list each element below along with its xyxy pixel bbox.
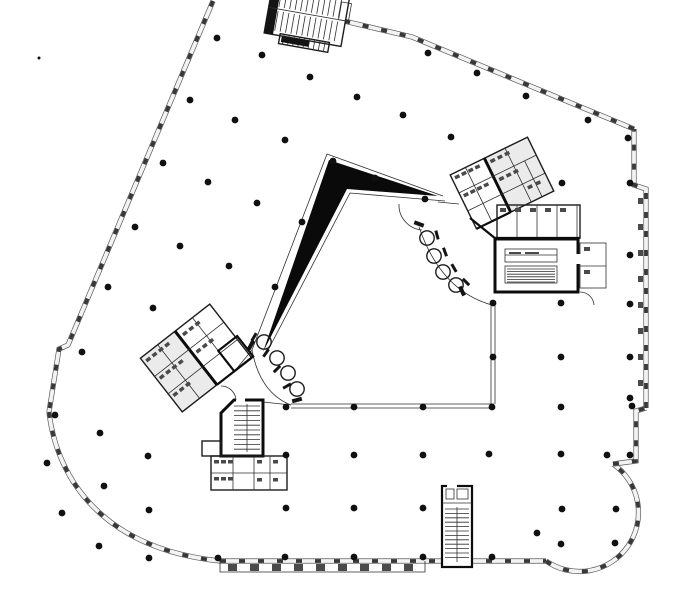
column-dot bbox=[38, 57, 41, 60]
mech-label-box bbox=[505, 249, 557, 262]
corridor-door-arc bbox=[399, 204, 422, 230]
column-dot bbox=[96, 543, 103, 550]
atrium-wedge-wall bbox=[263, 160, 438, 352]
floor-plan-drawing bbox=[0, 0, 686, 594]
column-dot bbox=[232, 117, 239, 124]
column-dot bbox=[625, 135, 632, 142]
mech-room-east bbox=[495, 239, 578, 292]
column-dot bbox=[474, 70, 481, 77]
column-dot bbox=[420, 505, 427, 512]
fixture bbox=[257, 460, 278, 464]
column-dot bbox=[101, 483, 108, 490]
door-arc bbox=[580, 292, 594, 305]
column-dot bbox=[283, 404, 290, 411]
fixture bbox=[214, 460, 233, 464]
column-dot bbox=[627, 180, 634, 187]
column-dot bbox=[448, 134, 455, 141]
column-dot bbox=[52, 412, 59, 419]
exterior-wall-top-right bbox=[344, 21, 634, 129]
fixture bbox=[257, 478, 278, 482]
column-dot bbox=[146, 555, 153, 562]
right-wall-mullion bbox=[638, 198, 643, 386]
door-gap bbox=[236, 398, 245, 403]
column-dot bbox=[330, 158, 337, 165]
column-dot bbox=[59, 510, 66, 517]
column-dot bbox=[523, 93, 530, 100]
column-grid bbox=[38, 35, 636, 562]
column-dot bbox=[627, 452, 634, 459]
elevator-car bbox=[420, 231, 434, 245]
exterior-wall-curve-se bbox=[546, 464, 638, 571]
elevator-door bbox=[434, 230, 439, 239]
illegible-text-mark bbox=[525, 252, 539, 254]
column-dot bbox=[160, 160, 167, 167]
column-dot bbox=[585, 117, 592, 124]
equipment-slats bbox=[507, 269, 555, 282]
shaft-wall-stub bbox=[292, 397, 303, 403]
column-dot bbox=[44, 460, 51, 467]
door-gap bbox=[576, 254, 582, 264]
column-dot bbox=[226, 263, 233, 270]
floor-plan bbox=[0, 0, 686, 594]
column-dot bbox=[351, 404, 358, 411]
column-dot bbox=[283, 452, 290, 459]
column-dot bbox=[282, 554, 289, 561]
fixture bbox=[584, 270, 590, 274]
column-dot bbox=[489, 404, 496, 411]
column-dot bbox=[372, 175, 379, 182]
column-dot bbox=[420, 404, 427, 411]
column-dot bbox=[612, 540, 619, 547]
column-dot bbox=[351, 452, 358, 459]
elevator-car bbox=[281, 366, 295, 380]
column-dot bbox=[146, 507, 153, 514]
fixture bbox=[195, 338, 214, 354]
column-dot bbox=[214, 35, 221, 42]
east-rooms bbox=[580, 243, 606, 288]
column-dot bbox=[558, 451, 565, 458]
door-gap bbox=[447, 483, 457, 488]
column-dot bbox=[254, 200, 261, 207]
column-dot bbox=[558, 541, 565, 548]
column-dot bbox=[490, 354, 497, 361]
exterior-wall-curve-sw bbox=[49, 412, 220, 561]
column-dot bbox=[351, 554, 358, 561]
elevator-car bbox=[257, 335, 271, 349]
toilet-core-ne-fill bbox=[485, 137, 554, 212]
column-dot bbox=[486, 451, 493, 458]
exterior-wall-right-upper bbox=[634, 129, 646, 408]
column-dot bbox=[604, 452, 611, 459]
column-dot bbox=[627, 252, 634, 259]
door-arc bbox=[221, 386, 236, 400]
column-dot bbox=[559, 506, 566, 513]
elevator-car bbox=[290, 382, 304, 396]
column-dot bbox=[559, 180, 566, 187]
column-dot bbox=[627, 301, 634, 308]
column-dot bbox=[627, 395, 634, 402]
illegible-text-mark bbox=[509, 252, 521, 254]
column-dot bbox=[177, 243, 184, 250]
column-dot bbox=[105, 284, 112, 291]
elevator-door bbox=[450, 263, 457, 272]
column-dot bbox=[79, 349, 86, 356]
column-dot bbox=[351, 505, 358, 512]
column-dot bbox=[629, 403, 636, 410]
bottom-bay-mullion bbox=[228, 564, 413, 571]
stair-core-south bbox=[221, 400, 263, 456]
column-dot bbox=[489, 554, 496, 561]
column-dot bbox=[307, 74, 314, 81]
column-dot bbox=[420, 554, 427, 561]
side-room bbox=[202, 441, 221, 456]
column-dot bbox=[187, 97, 194, 104]
column-dot bbox=[400, 112, 407, 119]
shaft-wall-stub bbox=[414, 220, 425, 227]
elevator-door bbox=[273, 365, 281, 373]
column-dot bbox=[150, 305, 157, 312]
column-dot bbox=[299, 219, 306, 226]
column-dot bbox=[354, 94, 361, 101]
column-dot bbox=[282, 137, 289, 144]
column-dot bbox=[97, 430, 104, 437]
column-dot bbox=[132, 224, 139, 231]
column-dot bbox=[627, 354, 634, 361]
column-dot bbox=[422, 196, 429, 203]
fixture bbox=[214, 477, 233, 481]
atrium-rail-arc-east bbox=[419, 227, 492, 305]
column-dot bbox=[425, 50, 432, 57]
corridor-link-line bbox=[438, 202, 459, 204]
column-dot bbox=[259, 52, 266, 59]
column-dot bbox=[534, 530, 541, 537]
column-dot bbox=[558, 354, 565, 361]
elevator-car bbox=[427, 249, 441, 263]
column-dot bbox=[272, 284, 279, 291]
column-dot bbox=[558, 404, 565, 411]
column-dot bbox=[613, 506, 620, 513]
elevator-car bbox=[270, 351, 284, 365]
fixture bbox=[584, 247, 590, 251]
atrium-rail-arc-west bbox=[252, 350, 291, 405]
column-dot bbox=[490, 300, 497, 307]
column-dot bbox=[215, 555, 222, 562]
column-dot bbox=[145, 453, 152, 460]
column-dot bbox=[283, 505, 290, 512]
elevator-door bbox=[442, 247, 448, 256]
column-dot bbox=[558, 300, 565, 307]
column-dot bbox=[205, 179, 212, 186]
column-dot bbox=[420, 452, 427, 459]
